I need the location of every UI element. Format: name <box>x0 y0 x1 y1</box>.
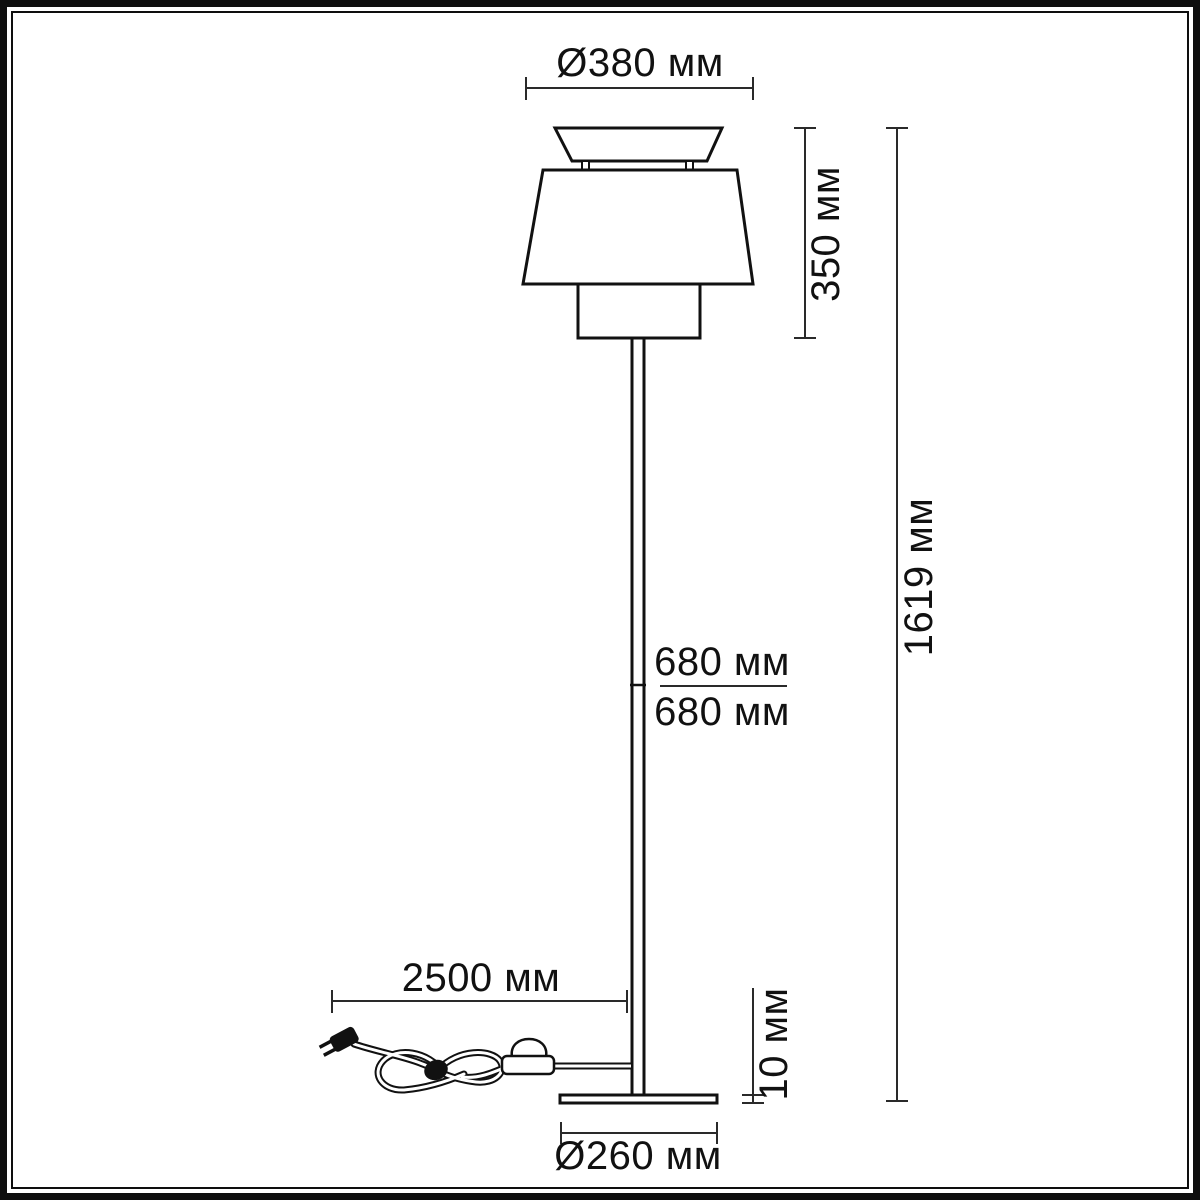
cord-length-label: 2500 мм <box>402 958 561 998</box>
lamp-top-bowl <box>555 128 722 161</box>
base-thickness-label: 10 мм <box>754 987 794 1100</box>
lamp-line-art <box>0 0 1200 1200</box>
lamp-pole <box>632 338 644 1095</box>
base-diameter-label: Ø260 мм <box>554 1136 721 1176</box>
stem-upper-label: 680 мм <box>654 642 790 682</box>
lamp-base <box>560 1095 717 1103</box>
total-height-label: 1619 мм <box>899 498 939 657</box>
foot-switch <box>502 1039 554 1074</box>
lamp-inner-cylinder <box>578 284 700 338</box>
shade-height-label: 350 мм <box>806 166 846 302</box>
stem-lower-label: 680 мм <box>654 692 790 732</box>
lamp-shade <box>523 170 753 284</box>
drawing-canvas: Ø380 мм 350 мм 1619 мм 680 мм 680 мм 250… <box>0 0 1200 1200</box>
power-plug <box>318 1025 360 1058</box>
shade-diameter-label: Ø380 мм <box>556 43 723 83</box>
power-cord <box>354 1044 632 1090</box>
